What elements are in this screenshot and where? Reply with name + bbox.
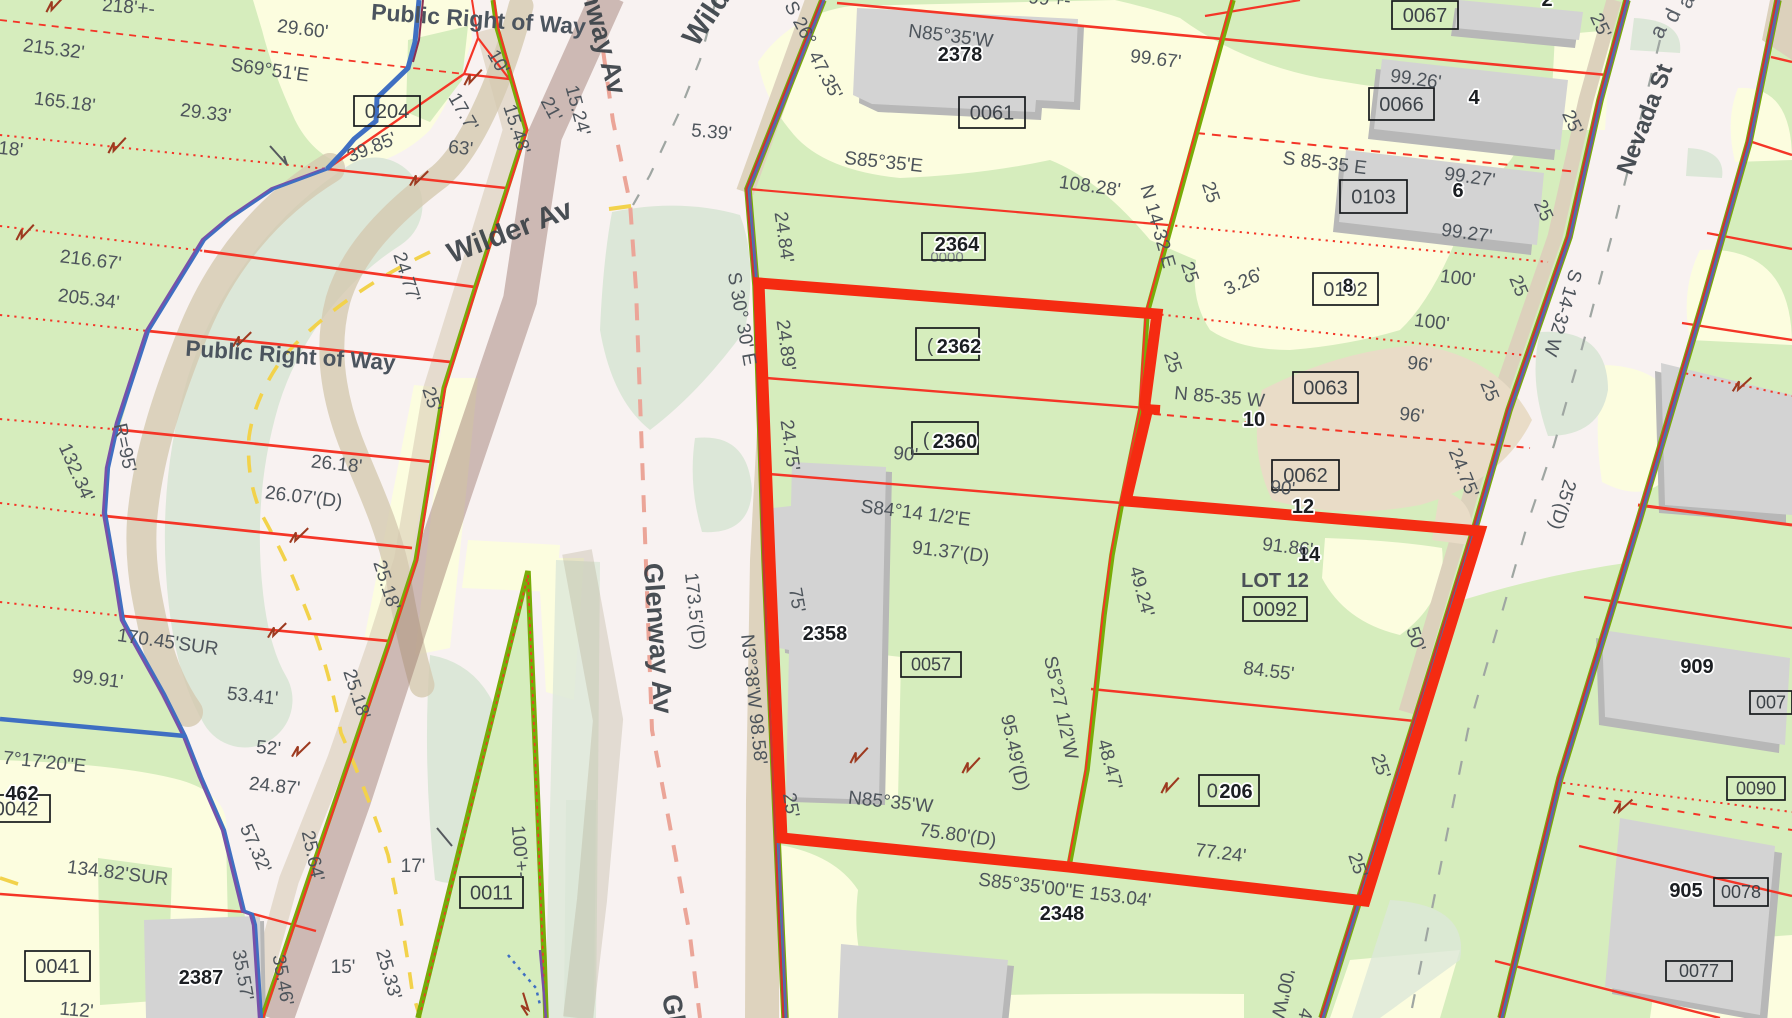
svg-text:100': 100'	[1439, 266, 1477, 291]
svg-text:5.39': 5.39'	[690, 120, 732, 144]
svg-text:0041: 0041	[35, 956, 80, 978]
svg-text:0066: 0066	[1379, 94, 1424, 116]
svg-text:25': 25'	[778, 791, 803, 819]
svg-text:90': 90'	[1269, 477, 1296, 500]
svg-text:15': 15'	[331, 957, 356, 978]
svg-text:112': 112'	[59, 999, 95, 1018]
svg-text:2: 2	[1541, 0, 1552, 11]
svg-text:12: 12	[1292, 496, 1314, 518]
svg-text:905: 905	[1669, 880, 1702, 902]
svg-text:4: 4	[1468, 87, 1480, 109]
svg-text:2362: 2362	[937, 336, 982, 358]
svg-text:909: 909	[1680, 656, 1713, 678]
svg-text:2348: 2348	[1040, 903, 1085, 925]
svg-text:0067: 0067	[1403, 5, 1448, 27]
svg-text:0103: 0103	[1351, 186, 1396, 208]
svg-text:206: 206	[1219, 781, 1252, 803]
svg-text:75': 75'	[784, 586, 809, 614]
svg-text:17': 17'	[401, 856, 426, 877]
svg-text:(: (	[923, 430, 930, 451]
svg-text:007: 007	[1756, 693, 1786, 713]
svg-text:462: 462	[5, 783, 38, 805]
svg-text:LOT 12: LOT 12	[1241, 570, 1309, 592]
svg-text:0063: 0063	[1303, 377, 1348, 399]
svg-text:2358: 2358	[803, 623, 848, 645]
svg-text:18': 18'	[0, 138, 24, 161]
svg-text:0204: 0204	[365, 101, 410, 123]
svg-text:2360: 2360	[933, 431, 978, 453]
svg-text:10: 10	[1243, 409, 1265, 431]
svg-text:96': 96'	[1398, 404, 1425, 428]
svg-text:2364: 2364	[935, 234, 980, 256]
svg-text:0057: 0057	[911, 655, 951, 675]
svg-text:90': 90'	[892, 443, 919, 466]
svg-text:2387: 2387	[179, 967, 224, 989]
svg-text:52': 52'	[255, 737, 282, 760]
svg-text:0092: 0092	[1253, 599, 1298, 621]
svg-text:63': 63'	[447, 137, 474, 160]
svg-text:96': 96'	[1406, 353, 1433, 377]
svg-text:0090: 0090	[1736, 779, 1776, 799]
svg-text:100': 100'	[1413, 310, 1451, 335]
svg-text:(: (	[927, 336, 934, 357]
svg-text:0061: 0061	[970, 102, 1015, 124]
svg-text:0077: 0077	[1679, 961, 1719, 981]
svg-text:0011: 0011	[470, 882, 513, 904]
svg-text:0078: 0078	[1721, 882, 1761, 902]
svg-text:8: 8	[1343, 276, 1354, 297]
